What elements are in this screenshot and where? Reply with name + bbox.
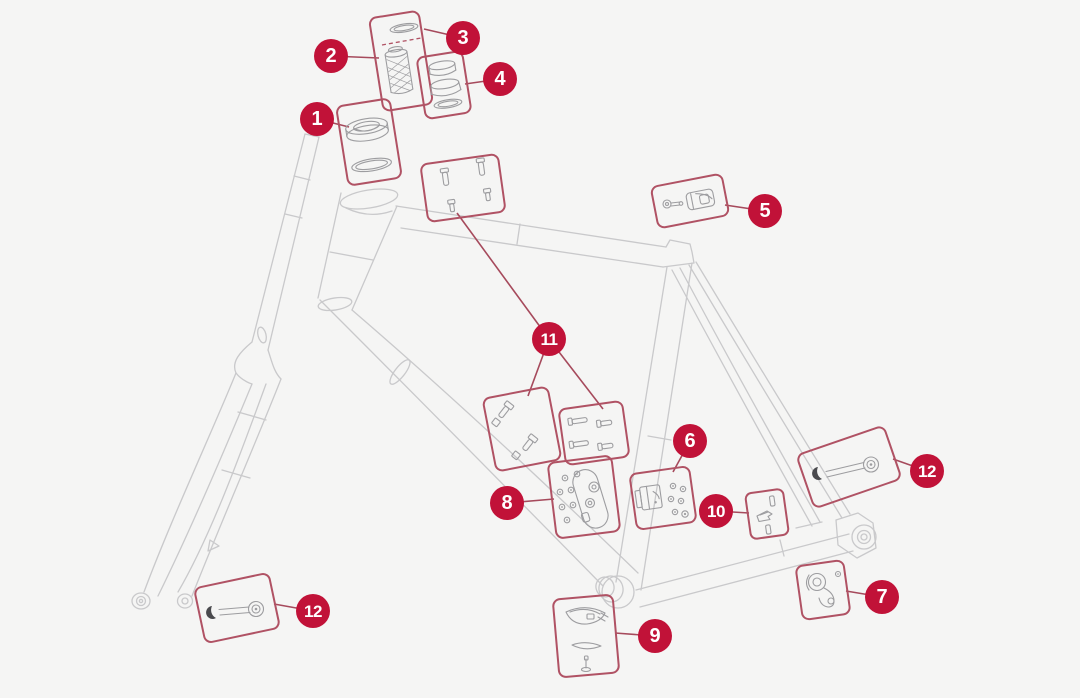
callout-7-badge[interactable]: 7 bbox=[865, 580, 899, 614]
leader-line-11a bbox=[457, 213, 549, 339]
leader-lines bbox=[274, 29, 927, 636]
thru-axle-left-drawing bbox=[206, 602, 263, 619]
fork-drawing bbox=[132, 134, 319, 609]
callout-3-badge[interactable]: 3 bbox=[446, 21, 480, 55]
callout-5-badge[interactable]: 5 bbox=[748, 194, 782, 228]
part-box-6 bbox=[629, 466, 696, 530]
callout-4-badge[interactable]: 4 bbox=[483, 62, 517, 96]
mounting-bolts-top-drawing bbox=[439, 158, 492, 213]
bolt-and-clamp-drawing bbox=[663, 188, 715, 210]
derailleur-hanger-drawing bbox=[807, 572, 841, 608]
part-box-7 bbox=[795, 560, 850, 620]
expander-plug-drawing bbox=[384, 45, 413, 95]
pins-and-clip-drawing bbox=[757, 496, 775, 535]
cover-plate-and-screws-drawing bbox=[557, 467, 611, 532]
part-box-12-right bbox=[796, 426, 901, 509]
callout-10-badge[interactable]: 10 bbox=[699, 494, 733, 528]
bracket-and-screws-drawing bbox=[634, 483, 688, 517]
callout-2-badge[interactable]: 2 bbox=[314, 39, 348, 73]
part-box-10 bbox=[745, 489, 789, 540]
mounting-bolts-right-drawing bbox=[566, 413, 616, 455]
callout-12-badge-left[interactable]: 12 bbox=[296, 594, 330, 628]
frame-drawing bbox=[317, 186, 876, 608]
box-2-3-divider bbox=[382, 38, 421, 45]
callout-11-badge[interactable]: 11 bbox=[532, 322, 566, 356]
callout-9-badge[interactable]: 9 bbox=[638, 619, 672, 653]
part-box-11-left bbox=[483, 386, 562, 471]
mounting-bolts-left-drawing bbox=[491, 401, 538, 460]
callout-1-badge[interactable]: 1 bbox=[300, 102, 334, 136]
part-box-11-right bbox=[558, 401, 629, 465]
parts-diagram-canvas: 1 2 3 4 5 6 7 8 9 10 11 12 12 bbox=[0, 0, 1080, 698]
part-box-1 bbox=[336, 98, 402, 185]
part-box-5 bbox=[651, 174, 730, 229]
callout-12-badge-right[interactable]: 12 bbox=[910, 454, 944, 488]
headset-spacers-drawing bbox=[426, 59, 463, 110]
frame-protector-and-bolt-drawing bbox=[566, 608, 608, 672]
callout-6-badge[interactable]: 6 bbox=[673, 424, 707, 458]
callout-8-badge[interactable]: 8 bbox=[490, 486, 524, 520]
headset-bearings-drawing bbox=[345, 116, 395, 174]
top-cap-seal-drawing bbox=[390, 22, 419, 34]
